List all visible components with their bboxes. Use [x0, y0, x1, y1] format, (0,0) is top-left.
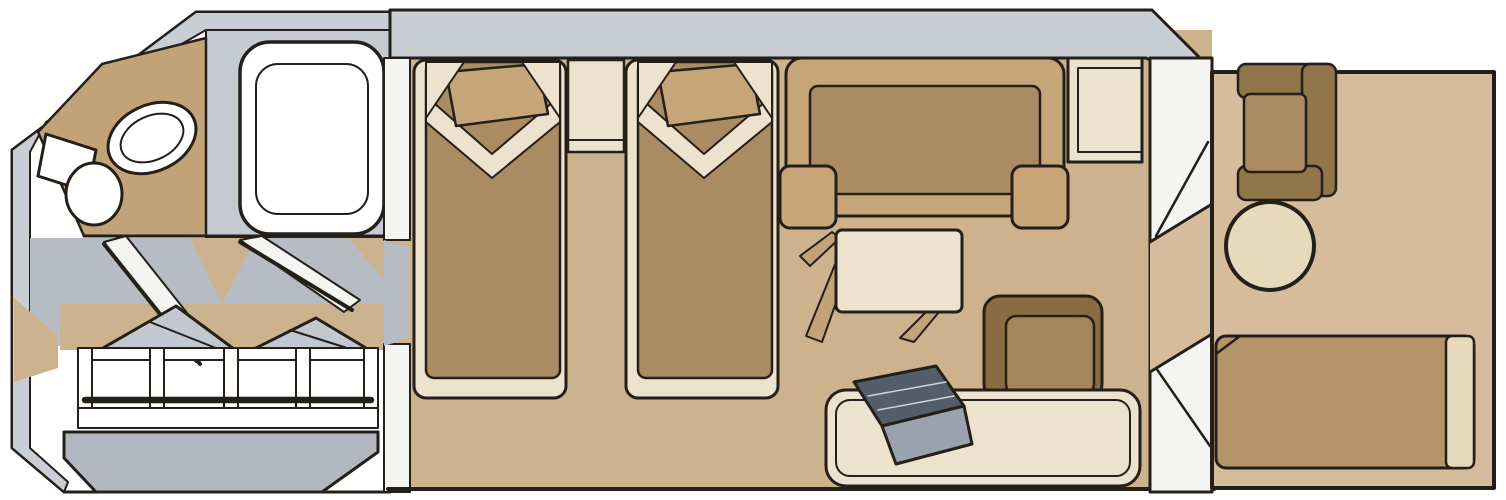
twin-bed-left [414, 60, 566, 398]
balcony-partition [1150, 58, 1212, 492]
closet-platform [64, 432, 378, 492]
ottoman-stool [984, 296, 1102, 400]
main-cabin [384, 10, 1216, 492]
balcony [1212, 64, 1494, 488]
cabin-entry-opening [384, 240, 410, 346]
sofa-cushion [810, 86, 1040, 194]
twin-bed-right [626, 60, 778, 398]
table-top [836, 230, 962, 312]
sofa-arm-left [780, 166, 836, 228]
toilet-bowl [66, 163, 122, 225]
balcony-chair [1238, 64, 1336, 200]
balcony-round-table [1226, 202, 1314, 290]
cabin-left-wall-lower [384, 344, 410, 492]
sofa-arm-right [1012, 166, 1068, 228]
lounger-headrest [1446, 336, 1474, 468]
stool-top [1006, 316, 1094, 394]
desk-top [1068, 58, 1142, 162]
lounger-body [1216, 336, 1474, 468]
chair-seat [1244, 94, 1306, 172]
nightstand [568, 60, 624, 152]
floor-plan-canvas [0, 0, 1506, 500]
floor-plan-page [0, 0, 1506, 500]
cabin-left-wall-upper [384, 58, 410, 240]
closet-base-band [78, 408, 378, 428]
desk [1068, 58, 1142, 162]
sun-lounger [1216, 336, 1474, 468]
sofa [780, 58, 1068, 228]
